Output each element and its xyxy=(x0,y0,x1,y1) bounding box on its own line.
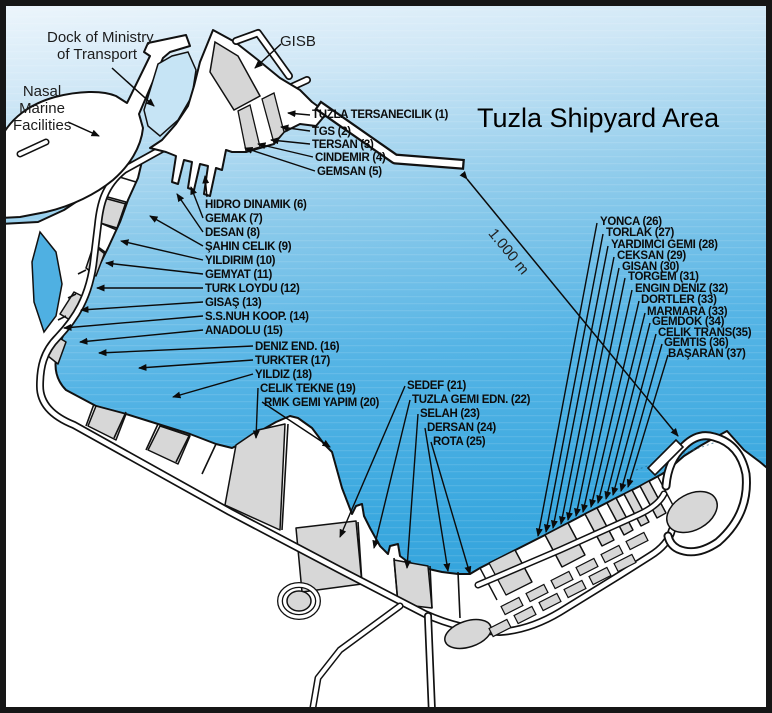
facility-label-5: GEMSAN (5) xyxy=(317,166,382,178)
facility-label-25: ROTA (25) xyxy=(433,436,485,448)
facility-label-21: SEDEF (21) xyxy=(407,380,466,392)
pond xyxy=(287,591,311,611)
facility-label-4: CINDEMIR (4) xyxy=(315,152,386,164)
facility-label-14: S.S.NUH KOOP. (14) xyxy=(205,311,309,323)
facility-label-16: DENIZ END. (16) xyxy=(255,341,339,353)
page-title: Tuzla Shipyard Area xyxy=(477,104,719,132)
facility-label-20: RMK GEMI YAPIM (20) xyxy=(264,397,379,409)
facility-label-13: GISAŞ (13) xyxy=(205,297,261,309)
facility-label-7: GEMAK (7) xyxy=(205,213,262,225)
facility-label-8: DESAN (8) xyxy=(205,227,260,239)
facility-label-17: TURKTER (17) xyxy=(255,355,330,367)
facility-label-9: ŞAHIN CELIK (9) xyxy=(205,241,291,253)
facility-label-15: ANADOLU (15) xyxy=(205,325,283,337)
facility-label-12: TURK LOYDU (12) xyxy=(205,283,300,295)
facility-label-19: CELIK TEKNE (19) xyxy=(260,383,356,395)
facility-label-22: TUZLA GEMI EDN. (22) xyxy=(412,394,530,406)
tuzla-shipyard-map: Tuzla Shipyard Area Dock of Ministry of … xyxy=(0,0,772,713)
facility-label-37: BAŞARAN (37) xyxy=(668,348,746,360)
dock-of-ministry-label: Dock of Ministry of Transport xyxy=(47,30,154,64)
gisb-label: GISB xyxy=(280,34,316,51)
nasal-marine-facilities-label: Nasal Marine Facilities xyxy=(13,84,71,134)
facility-label-11: GEMYAT (11) xyxy=(205,269,272,281)
facility-label-6: HIDRO DINAMIK (6) xyxy=(205,199,307,211)
facility-label-2: TGS (2) xyxy=(312,126,351,138)
facility-label-31: TORGEM (31) xyxy=(628,271,699,283)
facility-label-27: TORLAK (27) xyxy=(606,227,674,239)
facility-label-18: YILDIZ (18) xyxy=(255,369,312,381)
facility-label-10: YILDIRIM (10) xyxy=(205,255,275,267)
facility-label-24: DERSAN (24) xyxy=(427,422,496,434)
facility-label-33: DORTLER (33) xyxy=(641,294,717,306)
facility-label-3: TERSAN (3) xyxy=(312,139,374,151)
facility-label-1: TUZLA TERSANECILIK (1) xyxy=(312,109,448,121)
facility-label-23: SELAH (23) xyxy=(420,408,480,420)
